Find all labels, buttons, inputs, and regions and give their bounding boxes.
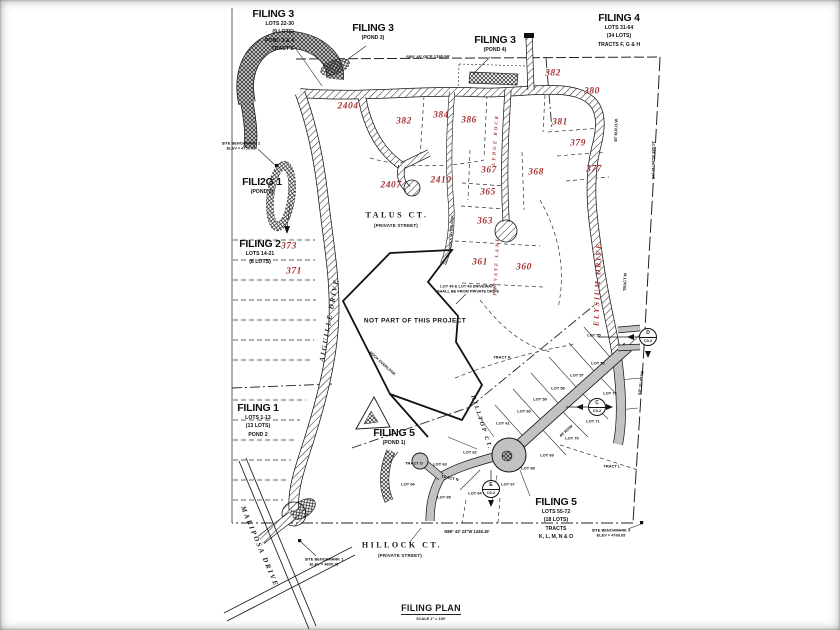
red-number: 382	[545, 68, 561, 81]
note: SITE BENCHMARK 1 ELEV = 4800.15	[305, 557, 343, 568]
red-number: 377	[586, 164, 602, 177]
lot-label: LOT 63	[433, 461, 447, 466]
red-number: 381	[552, 117, 568, 130]
lot-label: LOT 60	[517, 408, 531, 413]
lot-label: LOT 64	[468, 490, 482, 495]
filing-detail: TRACT E	[218, 45, 294, 53]
plan-title: FILING PLAN	[401, 603, 461, 615]
marker-sheet: C0.2	[483, 490, 499, 496]
lot-label: TRACT N	[441, 474, 459, 483]
street-name: ELYSIUM DRIVE	[591, 242, 604, 327]
filing-block-filing-3-1: FILING 3(POND 3)	[342, 22, 404, 42]
filing-detail: LOTS 22-30	[218, 20, 294, 28]
filing-detail: TRACTS F, G & H	[575, 41, 663, 49]
lot-label: TRACT O	[405, 460, 423, 465]
filing-title: FILING 3	[218, 8, 294, 20]
marker-letter: E	[483, 481, 499, 490]
filing-block-filing-3-2: FILING 3(POND 4)	[464, 34, 526, 54]
note: SITE BENCHMARK 3 ELEV = 4769.05	[592, 528, 630, 539]
note: LOT 49 & LOT 48 DRIVEWAYS SHALL BE FROM …	[437, 284, 499, 295]
filing-title: FILING 5	[514, 496, 598, 508]
filing-detail: K, L, M, N & O	[514, 533, 598, 541]
street-name: ROCK OVERLOOK	[448, 215, 455, 249]
filing-detail: LOTS 55-72	[514, 508, 598, 516]
plan-scale: SCALE 1" = 100'	[388, 617, 474, 621]
lot-label: LOT 62	[463, 449, 477, 454]
filing-detail: (34 LOTS)	[575, 32, 663, 40]
red-number: 371	[286, 266, 302, 279]
filing-plan-sheet: FILING 3LOTS 22-30(9 LOTS)POND 3 & 4TRAC…	[0, 0, 840, 630]
title-block: FILING PLAN SCALE 1" = 100'	[388, 598, 474, 621]
lot-label: LOT 61	[496, 420, 510, 425]
filing-detail: (POND 3)	[342, 34, 404, 42]
red-number: 2410	[431, 175, 452, 188]
street-subtitle: (PRIVATE STREET)	[374, 223, 418, 229]
note: NOT PART OF THIS PROJECT	[364, 318, 466, 327]
filing-block-filing-5-7: FILING 5(POND 1)	[362, 427, 426, 447]
lot-label: TRACT L	[603, 463, 620, 468]
street-name: TALUS CT.	[365, 211, 428, 222]
filing-block-fili2g-1-4: FILI2G 1(POND 2)	[222, 176, 302, 196]
filing-detail: (9 LOTS)	[218, 28, 294, 36]
bearing: S89° 45' 08"E 1380.99'	[406, 54, 450, 60]
bearing: 40' M.R.O.W.	[613, 118, 619, 142]
lot-label: LOT 68	[521, 465, 535, 470]
red-number: 360	[516, 262, 532, 275]
filing-detail: (18 LOTS)	[514, 516, 598, 524]
note: SITE BENCHMARK 2 ELEV = 4750.63	[222, 141, 260, 152]
detail-marker-c: CC0.2	[588, 398, 606, 416]
red-number: 2404	[338, 101, 359, 114]
filing-detail: (POND 2)	[222, 188, 302, 196]
red-number: 373	[281, 241, 297, 254]
lot-label: TRACT M	[622, 273, 628, 291]
street-name: ROCK OVERLOOK	[368, 351, 397, 378]
filing-title: FILING 3	[342, 22, 404, 34]
filing-block-filing-4-3: FILING 4LOTS 31-64(34 LOTS)TRACTS F, G &…	[575, 12, 663, 49]
street-subtitle: (PRIVATE STREET)	[378, 553, 422, 559]
bearing: S0° 31' 06"W	[637, 371, 645, 396]
filing-title: FILING 4	[575, 12, 663, 24]
red-number: 380	[584, 86, 600, 99]
filing-detail: (POND 1)	[362, 439, 426, 447]
lot-label: LOT 59	[533, 396, 547, 401]
filing-detail: POND 3 & 4	[218, 37, 294, 45]
lot-label: LOT 57	[570, 372, 584, 377]
detail-marker-e: EC0.2	[482, 480, 500, 498]
lot-label: LOT 58	[551, 385, 565, 390]
filing-detail: POND 2	[222, 431, 294, 439]
filing-title: FILING 5	[362, 427, 426, 439]
filing-title: FILING 3	[464, 34, 526, 46]
filing-block-filing-5-8: FILING 5LOTS 55-72(18 LOTS)TRACTSK, L, M…	[514, 496, 598, 541]
lot-label: TRACT K	[493, 354, 511, 359]
street-name: HILLTOP CT.	[468, 394, 494, 451]
red-number: 367	[481, 165, 497, 178]
lot-label: LOT 70	[565, 435, 579, 440]
filing-detail: TRACTS	[514, 525, 598, 533]
lot-label: LOT 55	[587, 332, 601, 337]
filing-detail: (13 LOTS)	[222, 422, 294, 430]
lot-label: LOT 56	[591, 360, 605, 365]
bearing: S0° 31' 06"W 335.13'	[650, 141, 655, 180]
red-number: 365	[480, 187, 496, 200]
filing-title: FILING 1	[222, 402, 294, 414]
marker-letter: C	[589, 399, 605, 408]
lot-label: LOT 66	[401, 481, 415, 486]
street-name: MARIPOSA DRIVE	[238, 505, 281, 589]
lot-label: LOT 69	[540, 452, 554, 457]
filing-detail: LOTS 31-64	[575, 24, 663, 32]
street-name: LEDGE ROCK	[492, 114, 502, 166]
filing-title: FILI2G 1	[222, 176, 302, 188]
lot-label: LOT 72	[603, 390, 617, 395]
marker-letter: D	[640, 329, 656, 338]
red-number: 386	[461, 115, 477, 128]
red-number: 2407	[381, 180, 402, 193]
red-number: 361	[472, 257, 488, 270]
red-number: 384	[433, 110, 449, 123]
marker-sheet: C0.2	[589, 408, 605, 414]
red-number: 368	[528, 167, 544, 180]
street-name: HILLOCK CT.	[362, 541, 442, 552]
label-layer: FILING 3LOTS 22-30(9 LOTS)POND 3 & 4TRAC…	[0, 0, 840, 630]
lot-label: LOT 67	[501, 481, 515, 486]
filing-block-filing-3-0: FILING 3LOTS 22-30(9 LOTS)POND 3 & 4TRAC…	[218, 8, 294, 53]
bearing: N89° 43' 23"W 1348.19'	[444, 529, 489, 535]
red-number: 379	[570, 138, 586, 151]
detail-marker-d: DC0.2	[639, 328, 657, 346]
red-number: 363	[477, 216, 493, 229]
filing-block-filing-1-6: FILING 1LOTS 1-13(13 LOTS)POND 2	[222, 402, 294, 439]
red-number: 382	[396, 116, 412, 129]
street-name: AIGUILLE DRIVE	[318, 277, 342, 362]
filing-detail: LOTS 1-13	[222, 414, 294, 422]
lot-label: LOT 65	[437, 494, 451, 499]
lot-label: LOT 71	[586, 418, 600, 423]
filing-detail: (POND 4)	[464, 46, 526, 54]
marker-sheet: C0.2	[640, 338, 656, 344]
